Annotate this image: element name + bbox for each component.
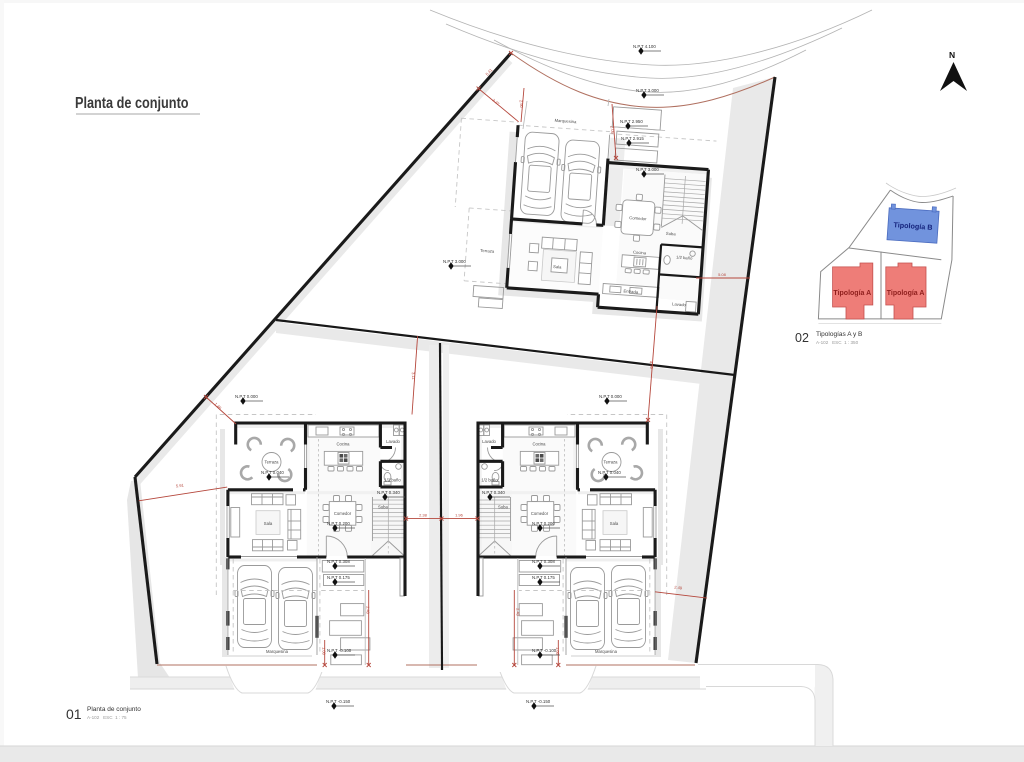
svg-text:Planta de conjunto: Planta de conjunto (87, 706, 141, 713)
svg-text:3.11: 3.11 (411, 372, 417, 381)
svg-text:Comedor: Comedor (334, 511, 352, 516)
svg-text:Tipología A: Tipología A (887, 290, 925, 297)
svg-text:Marquesina: Marquesina (266, 649, 289, 654)
svg-text:Suba: Suba (498, 505, 508, 510)
svg-text:N.P.T 0.308: N.P.T 0.308 (327, 559, 350, 564)
svg-text:2.40: 2.40 (515, 608, 520, 617)
svg-text:N.P.T 0.040: N.P.T 0.040 (598, 470, 621, 475)
svg-text:Lavado: Lavado (386, 439, 400, 444)
svg-text:1/2 baño: 1/2 baño (384, 478, 401, 483)
svg-text:Lavado: Lavado (482, 439, 496, 444)
svg-text:Sala: Sala (610, 521, 619, 526)
svg-text:N.P.T 0.000: N.P.T 0.000 (235, 394, 258, 399)
svg-text:Cocina: Cocina (532, 442, 546, 447)
svg-text:Terraza: Terraza (480, 248, 495, 254)
svg-text:N.P.T 0.175: N.P.T 0.175 (532, 575, 555, 580)
svg-text:Tipología A: Tipología A (833, 290, 871, 297)
svg-text:Terraza: Terraza (604, 460, 619, 465)
svg-text:Suba: Suba (666, 231, 677, 237)
svg-text:Terraza: Terraza (265, 460, 280, 465)
svg-text:N.P.T 0.040: N.P.T 0.040 (261, 470, 284, 475)
svg-text:1.00: 1.00 (321, 647, 326, 656)
svg-text:4.66: 4.66 (649, 361, 655, 370)
svg-text:1.96: 1.96 (455, 513, 464, 518)
svg-text:N.P.T -0.100: N.P.T -0.100 (327, 648, 352, 653)
svg-text:N.P.T 0.200: N.P.T 0.200 (532, 521, 555, 526)
svg-text:N.P.T -0.150: N.P.T -0.150 (326, 699, 351, 704)
svg-text:N.P.T 3.000: N.P.T 3.000 (636, 167, 659, 172)
svg-text:Lavado: Lavado (672, 301, 687, 307)
svg-text:N.P.T 3.000: N.P.T 3.000 (443, 259, 466, 264)
svg-text:N.P.T 2.950: N.P.T 2.950 (620, 119, 643, 124)
svg-text:N.P.T 4.100: N.P.T 4.100 (633, 44, 656, 49)
svg-text:02: 02 (795, 331, 809, 345)
svg-text:Sala: Sala (553, 264, 562, 270)
svg-text:Cocina: Cocina (336, 442, 350, 447)
svg-text:Comedor: Comedor (531, 511, 549, 516)
svg-text:Suba: Suba (378, 505, 388, 510)
svg-text:Entrada: Entrada (623, 288, 639, 294)
svg-text:N.P.T 0.340: N.P.T 0.340 (377, 490, 400, 495)
svg-text:2.49: 2.49 (674, 585, 683, 591)
svg-text:A-102 ESC 1 : 350: A-102 ESC 1 : 350 (816, 340, 859, 345)
svg-text:Sala: Sala (264, 521, 273, 526)
svg-text:A-102 ESC 1 : 75: A-102 ESC 1 : 75 (87, 715, 127, 720)
svg-text:Tipologías A y B: Tipologías A y B (816, 331, 862, 338)
svg-text:Cocina: Cocina (633, 250, 647, 256)
svg-text:Planta de conjunto: Planta de conjunto (75, 95, 189, 112)
svg-text:N.P.T -0.150: N.P.T -0.150 (526, 699, 551, 704)
svg-text:N.P.T 0.175: N.P.T 0.175 (327, 575, 350, 580)
svg-text:5.08: 5.08 (718, 272, 727, 277)
svg-text:N: N (949, 50, 955, 60)
svg-text:N.P.T 3.000: N.P.T 3.000 (636, 88, 659, 93)
svg-text:N.P.T -0.100: N.P.T -0.100 (532, 648, 557, 653)
svg-text:N.P.T 2.915: N.P.T 2.915 (621, 136, 644, 141)
svg-text:N.P.T 0.000: N.P.T 0.000 (599, 394, 622, 399)
svg-text:2.38: 2.38 (419, 513, 428, 518)
svg-text:N.P.T 0.308: N.P.T 0.308 (532, 559, 555, 564)
svg-text:1/2 baño: 1/2 baño (481, 478, 498, 483)
svg-text:Marquesina: Marquesina (595, 649, 618, 654)
svg-text:2.50: 2.50 (519, 100, 525, 109)
svg-text:01: 01 (66, 706, 82, 722)
svg-text:N.P.T 0.200: N.P.T 0.200 (327, 521, 350, 526)
svg-text:2.40: 2.40 (365, 606, 370, 615)
svg-text:N.P.T 0.340: N.P.T 0.340 (482, 490, 505, 495)
svg-text:2.05: 2.05 (610, 126, 616, 135)
